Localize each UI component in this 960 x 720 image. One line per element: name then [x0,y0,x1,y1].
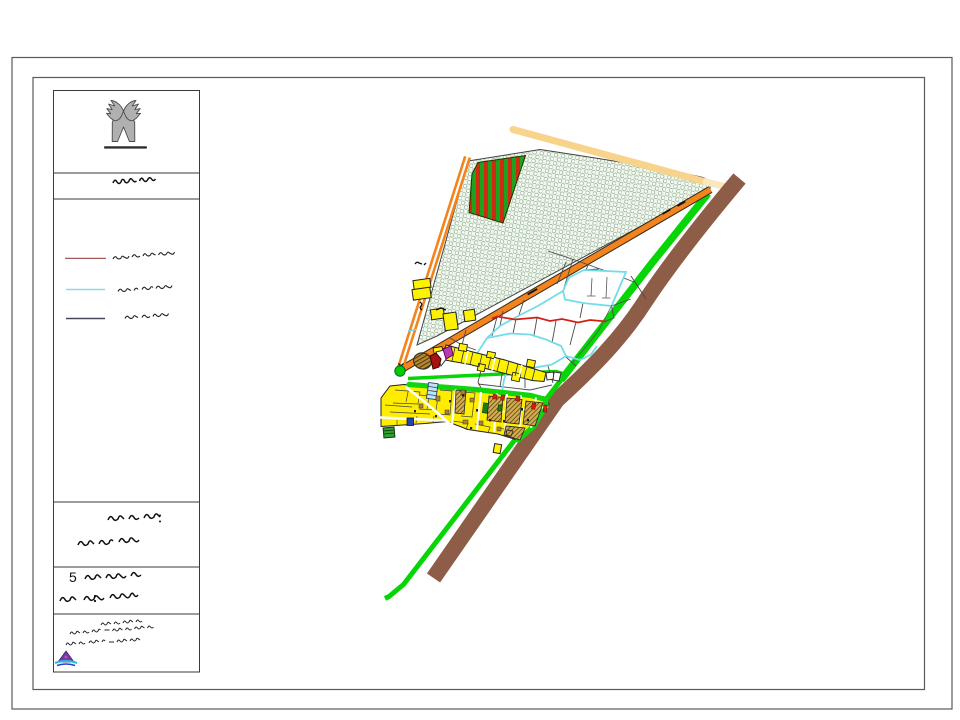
svg-text:5: 5 [69,569,77,585]
